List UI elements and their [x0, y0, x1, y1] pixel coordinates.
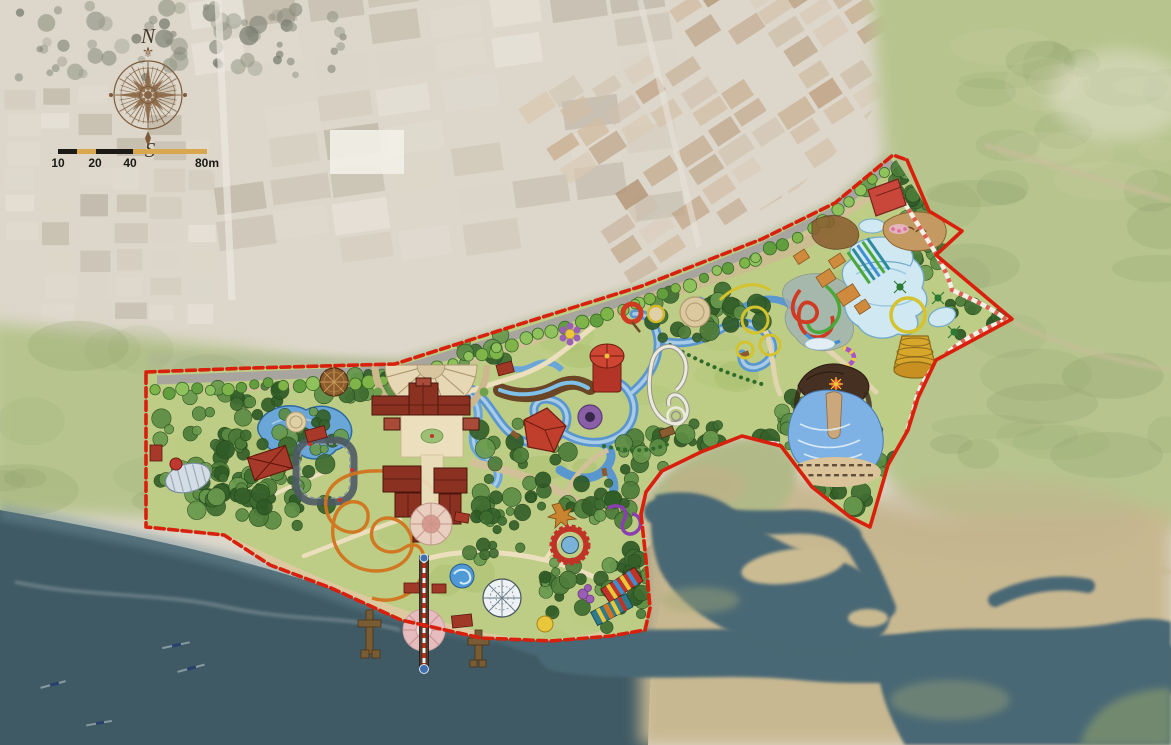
scale-segment	[133, 149, 207, 154]
courtyard-fountain	[430, 434, 434, 438]
splash-catch-pool	[805, 338, 835, 350]
purple-planting	[586, 595, 594, 603]
map-canvas: N ⚜ S 10 20 40 80m	[0, 0, 1171, 745]
sand-island	[848, 609, 888, 627]
marsh-patch	[660, 587, 740, 613]
yellow-dome	[537, 616, 553, 632]
gokart-car	[338, 498, 342, 502]
round-plaza-ne	[680, 297, 710, 327]
pink-float	[891, 227, 895, 231]
pavilion-cap	[170, 458, 182, 470]
marsh-patch	[890, 680, 1010, 720]
plaza-tree	[374, 388, 383, 397]
round-plaza	[286, 412, 306, 432]
scale-segment	[77, 149, 96, 154]
drum-hub	[605, 354, 610, 359]
theme-park-masterplan-map: N ⚜ S 10 20 40 80m	[0, 0, 1171, 745]
scale-tick-label: 20	[88, 156, 102, 170]
scale-tick-label: 40	[123, 156, 137, 170]
fleur-de-lis-icon: ⚜	[142, 44, 155, 60]
sand-transition	[850, 478, 1150, 562]
small-building	[150, 445, 162, 461]
small-building	[454, 512, 469, 523]
scale-segment	[96, 149, 133, 154]
pink-float	[897, 229, 901, 233]
scale-tick-label: 80m	[195, 156, 219, 170]
ring-ride-pool	[562, 537, 579, 554]
plaza-wedges	[410, 503, 452, 545]
crater-rays	[829, 377, 843, 391]
splash-pool	[859, 219, 885, 233]
shore-pavilion	[451, 614, 472, 628]
scale-segment	[58, 149, 77, 154]
kiosk	[432, 584, 446, 593]
white-warehouse	[330, 130, 404, 174]
kiosk	[404, 583, 420, 593]
pier-end-dome	[420, 665, 429, 674]
daisy-ride-center	[565, 329, 575, 339]
pier-end-dome	[420, 554, 428, 562]
medallion-spokes	[320, 368, 348, 396]
ring-pad	[648, 306, 664, 322]
pink-float	[903, 227, 907, 231]
plaza-tree	[480, 388, 489, 397]
purple-planting	[585, 585, 592, 592]
purple-ride-hub	[585, 412, 595, 422]
pool-island-tongue	[826, 392, 842, 439]
scale-tick-label: 10	[51, 156, 65, 170]
gokart-car	[350, 468, 354, 472]
